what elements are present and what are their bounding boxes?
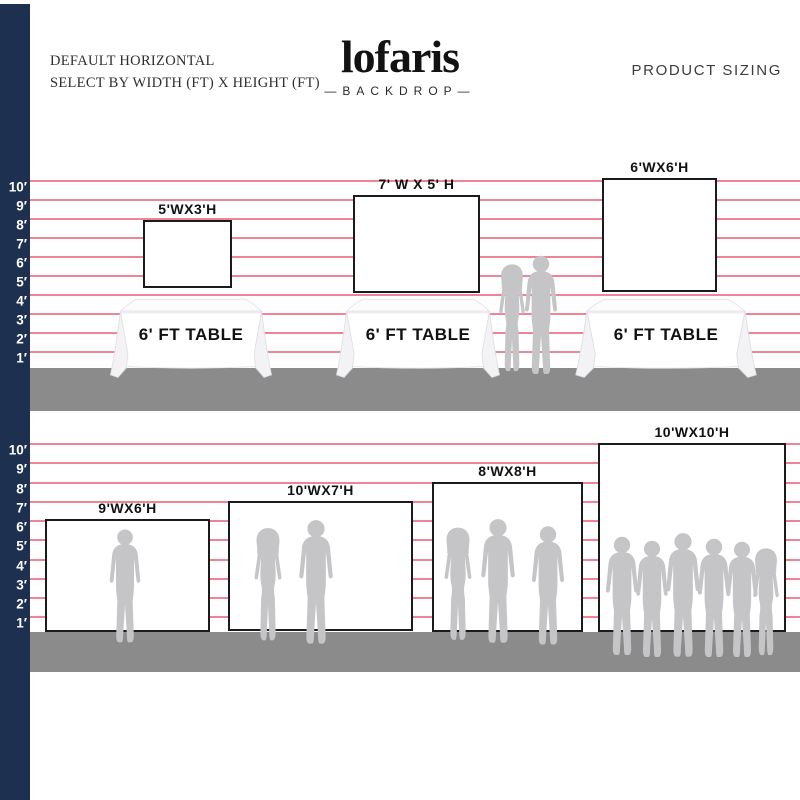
ruler-label-top: 10′: [0, 180, 27, 195]
table-3-label: 6' FT TABLE: [614, 325, 719, 345]
ruler-label-bottom: 2′: [0, 597, 27, 612]
ruler-label-top: 1′: [0, 351, 27, 366]
page-title: PRODUCT SIZING: [632, 62, 782, 79]
backdrop-rect: [602, 178, 717, 292]
backdrop-rect: [598, 443, 786, 632]
ruler-label-bottom: 1′: [0, 616, 27, 631]
backdrop-size-label: 10'WX7'H: [287, 482, 354, 498]
backdrop-rect: [432, 482, 583, 632]
brand-tagline: —BACKDROP—: [0, 84, 800, 98]
ruler-label-top: 6′: [0, 256, 27, 271]
person-silhouette: [499, 264, 525, 371]
backdrop-size-label: 7' W X 5' H: [379, 176, 455, 192]
ruler-label-bottom: 9′: [0, 462, 27, 477]
ruler-label-bottom: 7′: [0, 501, 27, 516]
ruler-label-bottom: 5′: [0, 539, 27, 554]
backdrop-rect: [353, 195, 480, 293]
backdrop-size-label: 8'WX8'H: [478, 463, 536, 479]
floor-bottom: [30, 632, 800, 672]
ruler-label-bottom: 4′: [0, 559, 27, 574]
backdrop-size-label: 10'WX10'H: [655, 424, 730, 440]
product-sizing-infographic: DEFAULT HORIZONTAL SELECT BY WIDTH (FT) …: [0, 0, 800, 800]
ruler-label-top: 7′: [0, 237, 27, 252]
ruler-bar: [0, 4, 30, 800]
backdrop-size-label: 9'WX6'H: [98, 500, 156, 516]
table-1-label: 6' FT TABLE: [139, 325, 244, 345]
ruler-label-bottom: 3′: [0, 578, 27, 593]
ruler-label-bottom: 6′: [0, 520, 27, 535]
ruler-label-bottom: 10′: [0, 443, 27, 458]
ruler-label-top: 5′: [0, 275, 27, 290]
ruler-label-top: 2′: [0, 332, 27, 347]
backdrop-size-label: 5'WX3'H: [158, 201, 216, 217]
table-2-label: 6' FT TABLE: [366, 325, 471, 345]
backdrop-rect: [143, 220, 232, 288]
backdrop-size-label: 6'WX6'H: [630, 159, 688, 175]
backdrop-rect: [228, 501, 413, 631]
ruler-label-top: 4′: [0, 294, 27, 309]
ruler-label-top: 9′: [0, 199, 27, 214]
ruler-label-top: 3′: [0, 313, 27, 328]
ruler-label-top: 8′: [0, 218, 27, 233]
ruler-label-bottom: 8′: [0, 482, 27, 497]
backdrop-rect: [45, 519, 210, 632]
